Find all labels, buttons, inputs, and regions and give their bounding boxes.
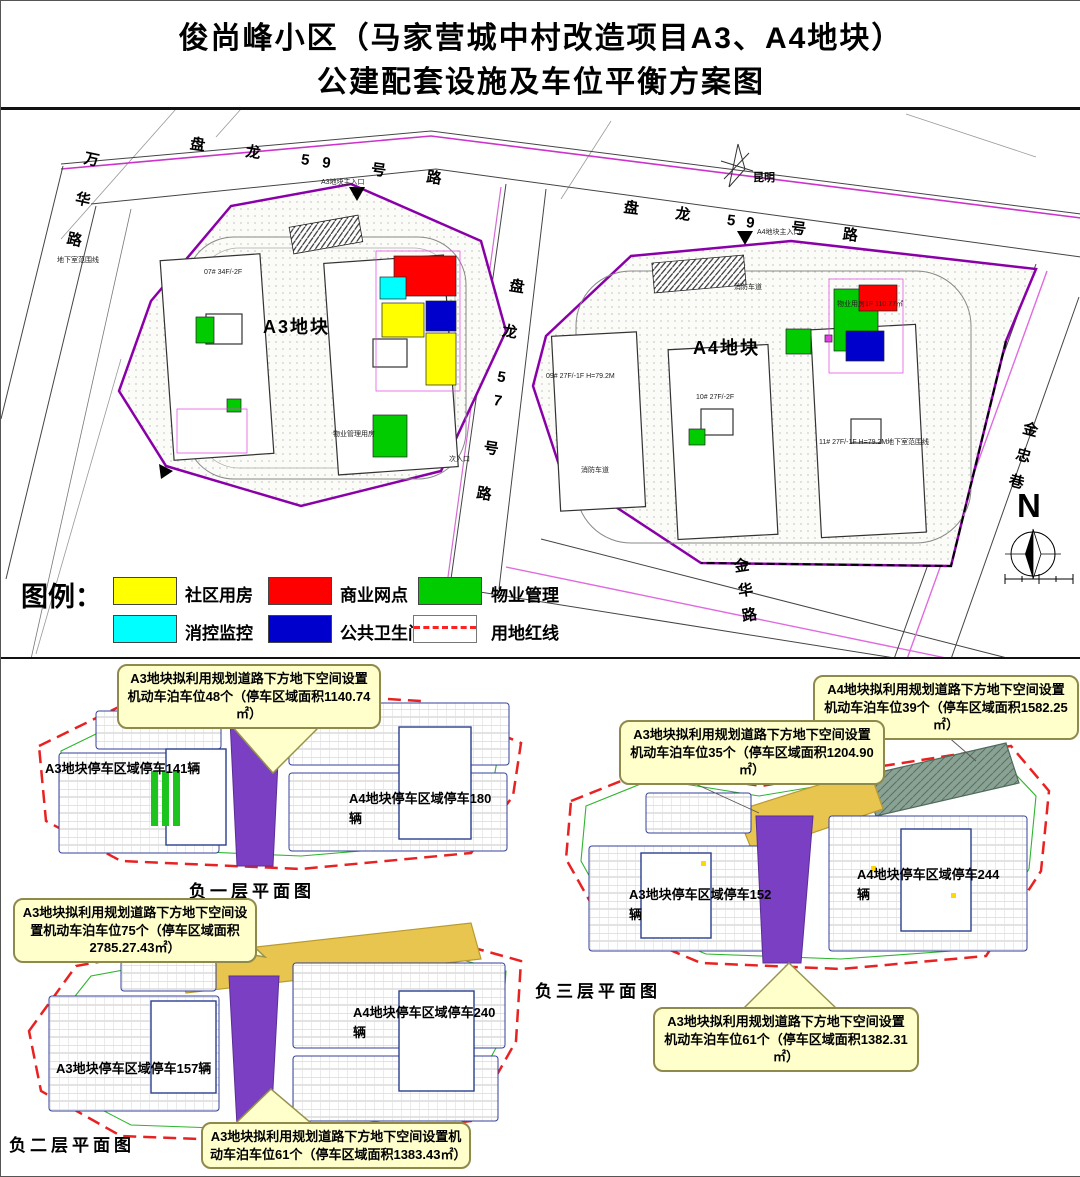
title-block: 俊尚峰小区（马家营城中村改造项目A3、A4地块） 公建配套设施及车位平衡方案图: [1, 1, 1080, 110]
legend-label-firecontrol: 消控监控: [185, 619, 253, 644]
callout-b1-a3-48: A3地块拟利用规划道路下方地下空间设置机动车泊车位48个（停车区域面积1140.…: [117, 664, 381, 729]
b3-a3-parking-label: A3地块停车区域停车152辆: [629, 885, 779, 924]
legend-swatch-property: [418, 577, 482, 605]
b2-a4-parking-label: A4地块停车区域停车240辆: [353, 1003, 503, 1042]
b2-title: 负二层平面图: [9, 1131, 135, 1156]
building-label-a4-2: 10# 27F/-2F: [696, 394, 734, 401]
legend-label-property: 物业管理: [491, 581, 559, 606]
basement-line-note-1: 地下室范围线: [57, 255, 99, 265]
b1-a4-parking-label: A4地块停车区域停车180辆: [349, 789, 494, 828]
b1-a3-parking-label: A3地块停车区域停车141辆: [45, 759, 205, 779]
page-title-line2: 公建配套设施及车位平衡方案图: [1, 57, 1080, 101]
entrance-label-west: A3地块主入口: [321, 177, 365, 187]
fire-lane-note-1: 消防车道: [734, 282, 762, 292]
entrance-label-east: A4地块主入口: [757, 227, 801, 237]
legend-label-commerce: 商业网点: [340, 581, 408, 606]
compass: [1005, 529, 1073, 584]
legend-swatch-commerce: [268, 577, 332, 605]
plot-label-a4: A4地块: [693, 334, 760, 360]
legend: 图例： 社区用房 商业网点 物业管理 消控监控 公共卫生间 用地红线: [13, 569, 588, 653]
fire-lane-note-2: 消防车道: [581, 465, 609, 475]
b2-a3-parking-label: A3地块停车区域停车157辆: [56, 1059, 221, 1079]
city-label-kunming: 昆明: [753, 169, 775, 185]
compass-n-label: N: [1017, 487, 1041, 525]
legend-label-redline: 用地红线: [491, 619, 559, 644]
callout-b3-a3-61: A3地块拟利用规划道路下方地下空间设置机动车泊车位61个（停车区域面积1382.…: [653, 1007, 919, 1072]
legend-swatch-firecontrol: [113, 615, 177, 643]
north-star-sketch: [721, 144, 753, 187]
section-divider: [1, 657, 1080, 659]
legend-title: 图例：: [21, 575, 102, 614]
building-label-a3-1: 07# 34F/-2F: [204, 269, 242, 276]
building-label-a4-3: 11# 27F/-1F H=79.2M: [819, 439, 887, 446]
b3-a4-parking-label: A4地块停车区域停车244辆: [857, 865, 1007, 904]
building-label-a4-pm: 物业用房1F 110.77㎡: [837, 299, 903, 309]
building-label-a4-1: 09# 27F/-1F H=79.2M: [546, 373, 615, 380]
callout-b2-a3-75: A3地块拟利用规划道路下方地下空间设置机动车泊车位75个（停车区域面积2785.…: [13, 898, 257, 963]
basement-line-note-2: 地下室范围线: [887, 437, 929, 447]
b3-title: 负三层平面图: [535, 977, 661, 1002]
page-title-line1: 俊尚峰小区（马家营城中村改造项目A3、A4地块）: [1, 13, 1080, 57]
callout-b3-a3-35: A3地块拟利用规划道路下方地下空间设置机动车泊车位35个（停车区域面积1204.…: [619, 720, 885, 785]
legend-label-community: 社区用房: [185, 581, 253, 606]
plan-sheet: 俊尚峰小区（马家营城中村改造项目A3、A4地块） 公建配套设施及车位平衡方案图: [0, 0, 1080, 1177]
entrance-label-side: 次入口: [449, 454, 470, 464]
legend-swatch-toilet: [268, 615, 332, 643]
plot-label-a3: A3地块: [263, 313, 330, 339]
building-label-a3-pm: 物业管理用房: [333, 429, 375, 439]
legend-swatch-community: [113, 577, 177, 605]
legend-swatch-redline: [413, 615, 477, 643]
callout-b2-a3-61: A3地块拟利用规划道路下方地下空间设置机动车泊车位61个（停车区域面积1383.…: [201, 1122, 471, 1169]
